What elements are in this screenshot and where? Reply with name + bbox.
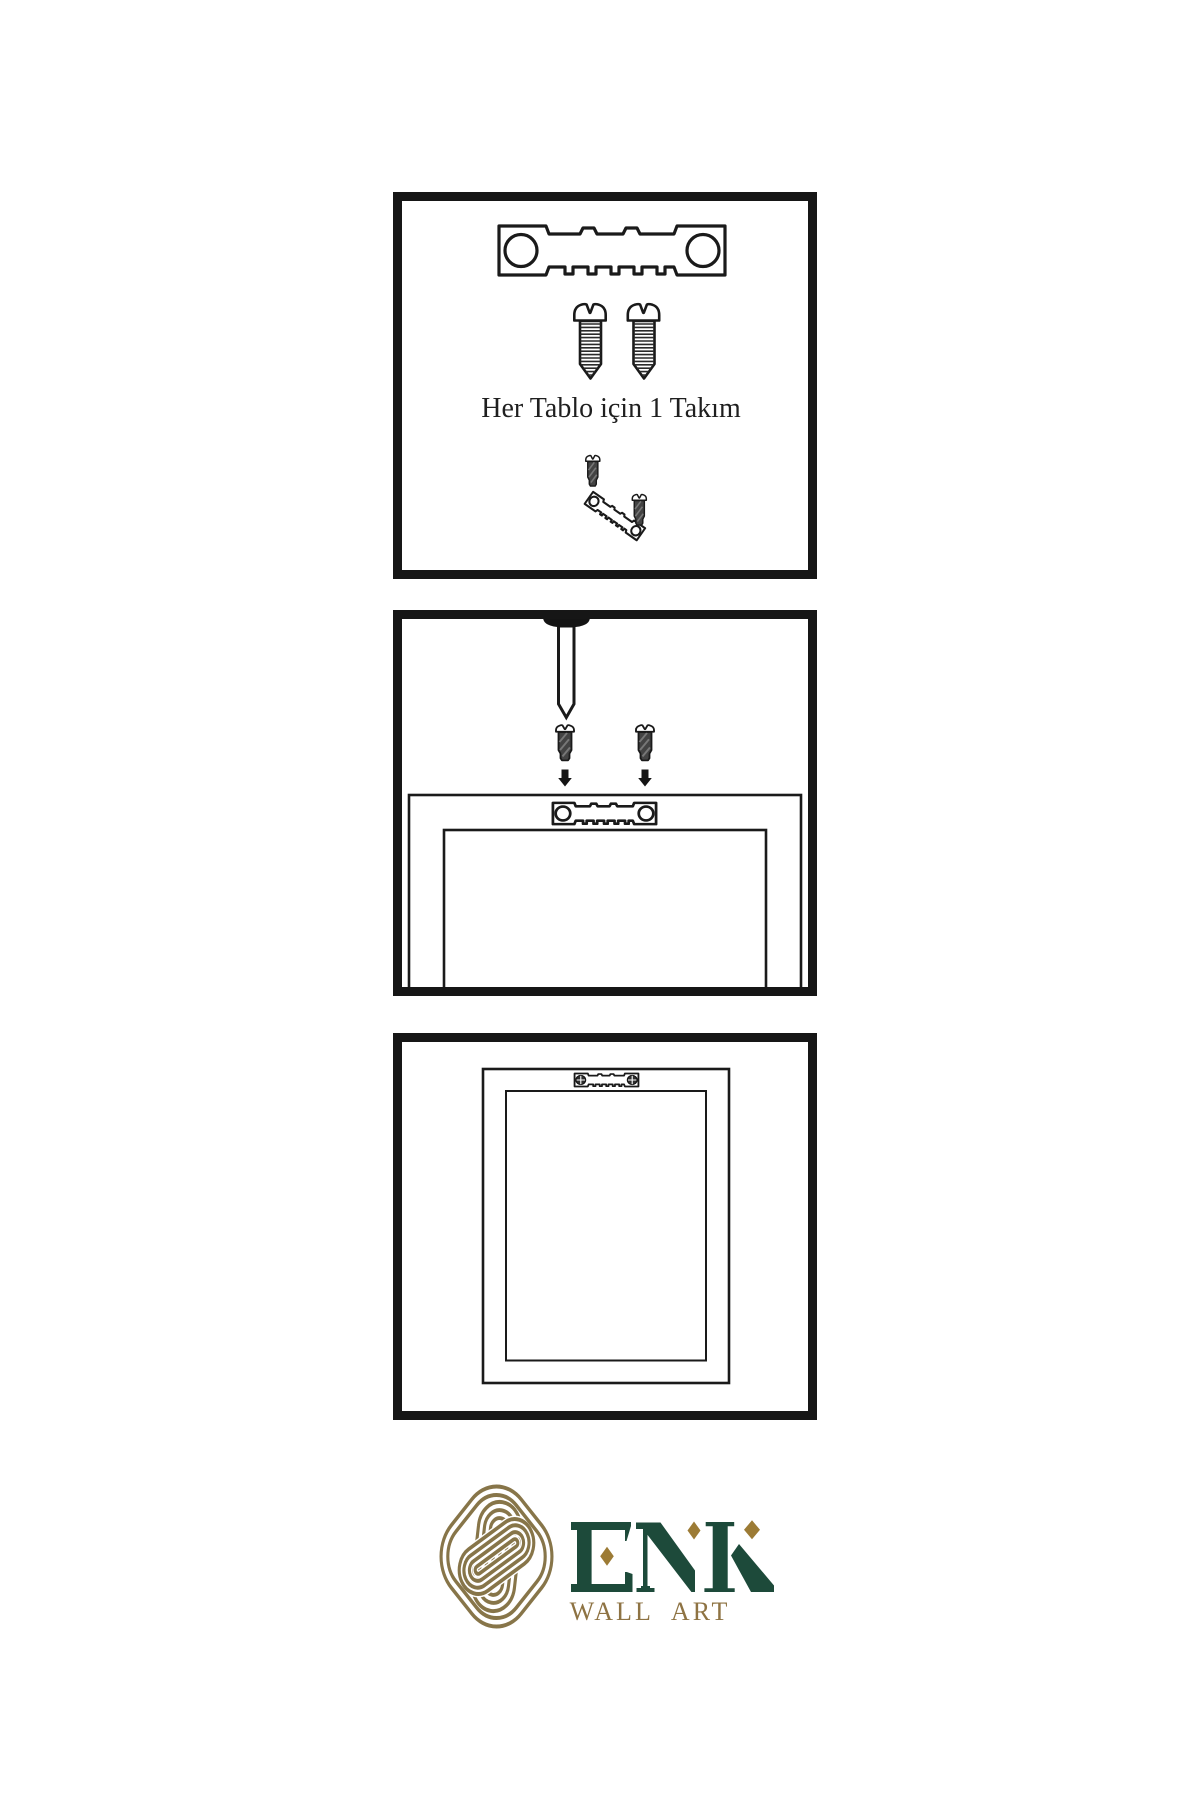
svg-text:Her Tablo için 1 Takım: Her Tablo için 1 Takım (481, 393, 741, 424)
svg-text:WALL ART: WALL ART (570, 1597, 731, 1626)
